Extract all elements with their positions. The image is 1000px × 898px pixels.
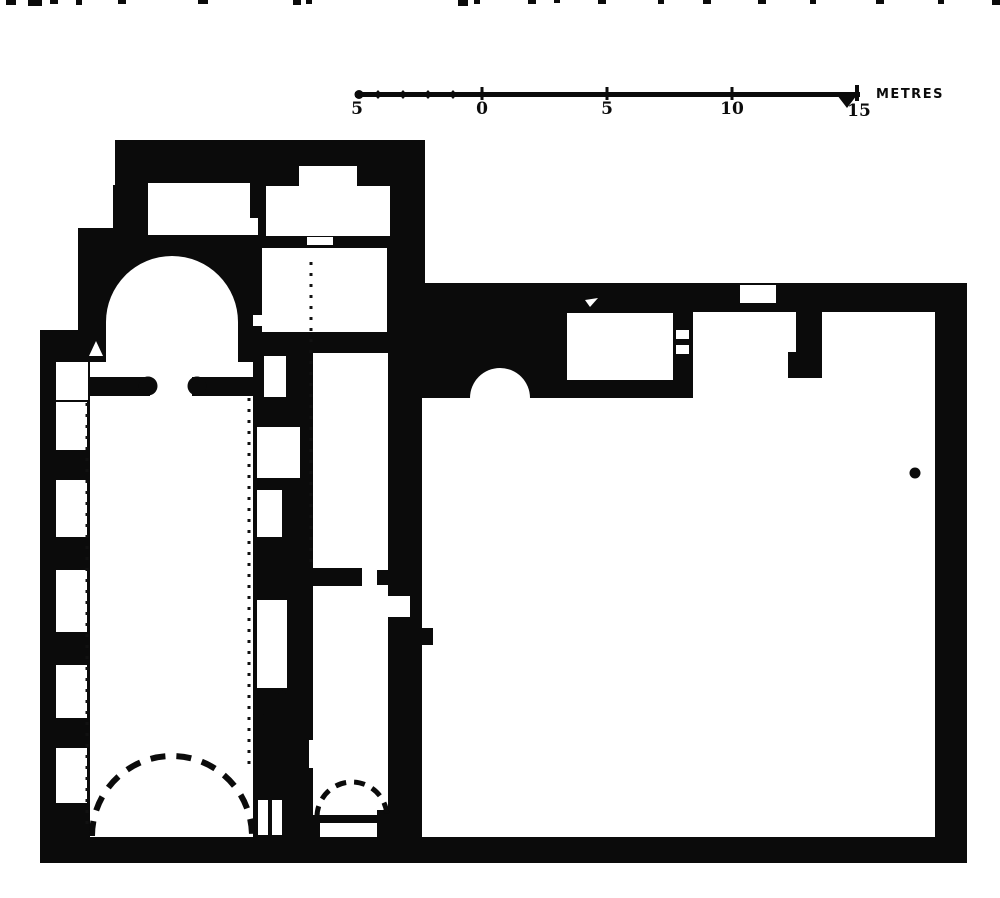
- scale-label-10: 10: [720, 101, 744, 118]
- small-room-plinth: [320, 823, 377, 835]
- south-wall: [40, 837, 967, 863]
- nave-east-wall-strip: [253, 345, 313, 837]
- corridor-upper-room: [262, 248, 387, 332]
- scale-bar-end-dot: [355, 90, 364, 99]
- corridor-dashed-vault-arc: [317, 782, 387, 817]
- nave-dashed-vault-arc: [92, 756, 252, 836]
- wall-fragment: [417, 196, 425, 214]
- survey-dot: [910, 468, 921, 479]
- scale-label-15: 15: [847, 103, 871, 120]
- corridor-cross-wall: [313, 568, 362, 586]
- corridor-door-gap: [388, 596, 410, 617]
- hall-north-wall: [693, 283, 967, 312]
- scanned-plan-page: 5 0 5 10 15 METRES: [0, 0, 1000, 898]
- corridor-east-wall: [388, 398, 422, 837]
- floor-plan-drawing: [0, 0, 1000, 898]
- north-wall-door-gap: [740, 285, 776, 303]
- scale-label-0: 0: [476, 101, 488, 118]
- corridor-threshold: [313, 347, 388, 353]
- hall-east-wall: [935, 283, 967, 863]
- metres-label: METRES: [876, 88, 944, 101]
- scale-label-5-right: 5: [601, 101, 613, 118]
- wall-chamber: [567, 313, 673, 380]
- north-room: [266, 186, 390, 236]
- c-mark: [68, 380, 81, 393]
- scale-label-5-left: 5: [351, 101, 363, 118]
- north-wall-church: [115, 140, 425, 188]
- wall-bump: [420, 628, 433, 645]
- top-edge-scan-artifacts: [6, 0, 1000, 6]
